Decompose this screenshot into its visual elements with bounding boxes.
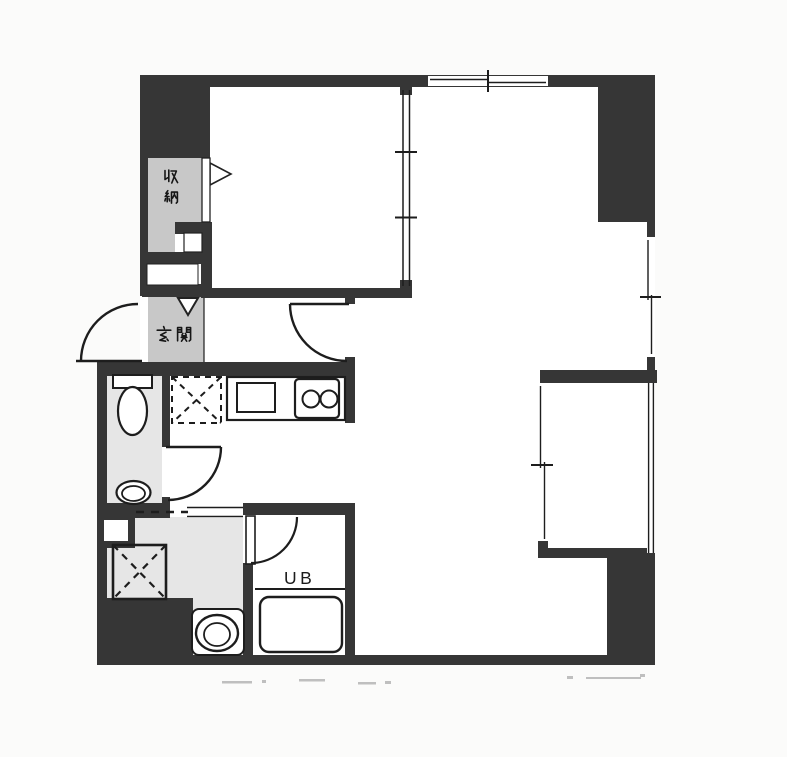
scan-artifact	[567, 676, 573, 679]
sanitary-threshold	[187, 506, 243, 518]
wall-balcony-top	[540, 370, 657, 383]
wall-bath-east	[345, 505, 355, 665]
closet-door-leaf	[202, 158, 210, 222]
wall-top	[140, 75, 655, 87]
balcony-rail	[647, 383, 655, 553]
wall-block-bottom-left	[97, 598, 193, 665]
wall-toilet-south	[97, 503, 170, 518]
scan-artifact	[222, 681, 252, 684]
wall-bedroom-south	[204, 288, 412, 298]
unit-bath-label: UB	[284, 568, 315, 588]
wall-block-bottom-right	[607, 553, 655, 665]
wall-block-top-left	[140, 75, 210, 158]
scan-artifact	[586, 677, 641, 679]
wall-below-closet	[142, 252, 212, 264]
bathtub-icon	[260, 597, 342, 652]
wall-bath-divider-upper	[243, 503, 253, 515]
bath-fixtures	[255, 589, 345, 652]
pipe-space-niche	[104, 520, 128, 541]
corridor-niche	[147, 264, 198, 285]
entrance-floor	[148, 296, 204, 362]
wall-alcove-window-stub	[538, 541, 548, 558]
wall-kitchen-north	[97, 362, 355, 376]
wall-hall-east-upper	[345, 288, 355, 304]
wall-bath-north	[253, 503, 355, 515]
wall-block-top-right	[598, 87, 655, 222]
scan-artifact	[640, 674, 645, 677]
scan-artifact	[385, 681, 391, 684]
bath-door-leaf	[246, 516, 255, 564]
wall-toilet-east-upper	[162, 376, 170, 447]
closet-niche	[184, 233, 202, 252]
wall-east-upper-stub	[647, 222, 655, 237]
floor-plan-page: UB	[0, 0, 787, 757]
storage-floor-step	[148, 226, 175, 255]
wall-kitchen-east	[345, 376, 355, 423]
toilet-icon	[118, 387, 147, 435]
scan-artifact	[262, 680, 266, 683]
scan-artifact	[358, 682, 376, 685]
scan-artifact	[299, 679, 325, 682]
floor-plan-svg: UB	[0, 0, 787, 757]
